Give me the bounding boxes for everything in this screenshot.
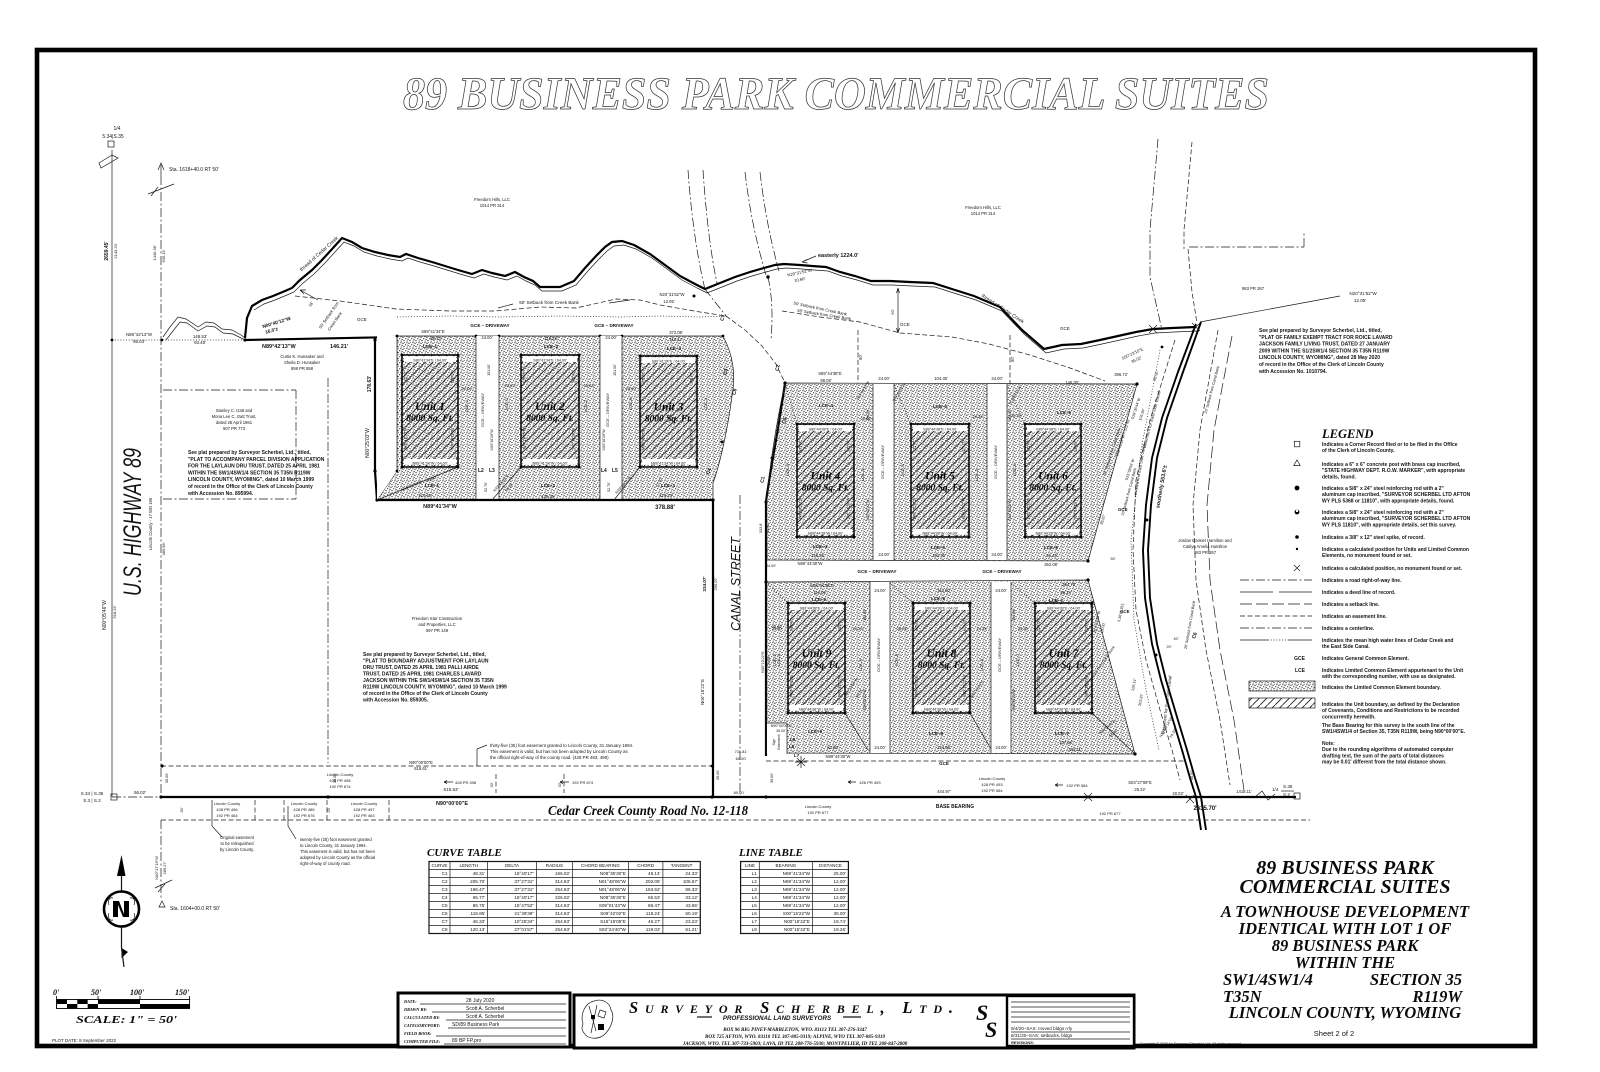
svg-text:20': 20' bbox=[1167, 645, 1172, 649]
svg-text:COMMERCIAL SUITES: COMMERCIAL SUITES bbox=[1240, 876, 1451, 898]
svg-text:C7: C7 bbox=[720, 314, 727, 322]
svg-text:334.07': 334.07' bbox=[702, 576, 707, 591]
svg-text:GCE – DRIVEWAY: GCE – DRIVEWAY bbox=[880, 445, 885, 479]
svg-text:LCE–3: LCE–3 bbox=[628, 397, 633, 410]
svg-text:30': 30' bbox=[490, 782, 494, 787]
svg-text:The Base Bearing for this surv: The Base Bearing for this survey is the … bbox=[1322, 723, 1455, 729]
svg-text:Sta. 1618+40.0 RT 50': Sta. 1618+40.0 RT 50' bbox=[169, 167, 219, 173]
svg-text:15.74': 15.74' bbox=[834, 919, 846, 924]
svg-text:N00°15'22"E: N00°15'22"E bbox=[1037, 675, 1041, 696]
svg-text:N90°00'00"E: N90°00'00"E bbox=[771, 724, 792, 728]
svg-text:of record in the Office of the: of record in the Office of the Clerk of … bbox=[188, 484, 313, 490]
svg-text:PROFESSIONAL LAND SURVEYORS: PROFESSIONAL LAND SURVEYORS bbox=[723, 1015, 832, 1022]
svg-text:S00°18'26"W: S00°18'26"W bbox=[490, 429, 494, 451]
svg-text:"PLAT TO BOUNDARY ADJUSTMENT F: "PLAT TO BOUNDARY ADJUSTMENT FOR LAYLAUN bbox=[363, 659, 489, 665]
svg-text:396.73': 396.73' bbox=[1114, 372, 1128, 377]
svg-text:N89°44'38"W / 64.00': N89°44'38"W / 64.00' bbox=[1046, 707, 1081, 711]
svg-text:362.08': 362.08' bbox=[1044, 562, 1058, 567]
svg-text:48.14': 48.14' bbox=[648, 871, 660, 876]
svg-text:26.25': 26.25' bbox=[853, 626, 864, 631]
svg-text:TRUST, DATED 25 APRIL 1981 CHA: TRUST, DATED 25 APRIL 1981 CHARLES LAVAR… bbox=[363, 672, 482, 678]
svg-text:12.05': 12.05' bbox=[663, 299, 674, 304]
svg-text:dated 25 April 1981: dated 25 April 1981 bbox=[216, 420, 253, 425]
svg-text:150': 150' bbox=[175, 988, 190, 997]
svg-text:Original easement: Original easement bbox=[220, 835, 255, 840]
svg-text:226.02': 226.02' bbox=[555, 895, 570, 900]
svg-text:"PLAT TO ACCOMPANY PARCEL DIVI: "PLAT TO ACCOMPANY PARCEL DIVISION APPLI… bbox=[188, 457, 325, 463]
svg-text:DATE:: DATE: bbox=[403, 999, 417, 1004]
svg-text:N00°15'22"E: N00°15'22"E bbox=[913, 498, 917, 519]
svg-text:C3: C3 bbox=[723, 368, 730, 376]
svg-text:125.00': 125.00' bbox=[451, 371, 455, 383]
svg-text:CATEGORY/PORT:: CATEGORY/PORT: bbox=[404, 1023, 441, 1028]
svg-text:104.35': 104.35' bbox=[932, 553, 946, 558]
svg-text:518.25': 518.25' bbox=[112, 605, 117, 618]
svg-text:194.00': 194.00' bbox=[863, 609, 867, 621]
svg-text:LCE–7: LCE–7 bbox=[1055, 731, 1070, 736]
svg-text:12.00': 12.00' bbox=[834, 903, 846, 908]
svg-text:8000 Sq. Ft.: 8000 Sq. Ft. bbox=[1040, 661, 1088, 671]
svg-text:12.05': 12.05' bbox=[1354, 298, 1366, 303]
svg-text:118.25': 118.25' bbox=[811, 553, 824, 558]
svg-text:DISTANCE: DISTANCE bbox=[819, 863, 842, 868]
svg-text:Indicates a calculated positio: Indicates a calculated position for Unit… bbox=[1322, 547, 1469, 553]
svg-text:40': 40' bbox=[1174, 637, 1179, 641]
svg-text:L4: L4 bbox=[601, 468, 607, 474]
svg-text:119.02': 119.02' bbox=[646, 927, 661, 932]
svg-text:50': 50' bbox=[1010, 356, 1015, 362]
svg-text:983 PR 267: 983 PR 267 bbox=[1194, 550, 1217, 555]
svg-text:616.53': 616.53' bbox=[444, 787, 459, 792]
svg-text:LCE–8: LCE–8 bbox=[929, 731, 944, 736]
svg-text:983 PR 267: 983 PR 267 bbox=[1242, 286, 1265, 291]
svg-text:GCE: GCE bbox=[1060, 326, 1070, 331]
svg-text:166.02': 166.02' bbox=[555, 871, 570, 876]
svg-text:S.3 | S.2: S.3 | S.2 bbox=[83, 798, 101, 803]
svg-text:N00°15'22"E: N00°15'22"E bbox=[784, 919, 810, 924]
svg-text:WY PLS 5368 or 11810", with ap: WY PLS 5368 or 11810", with appropriate … bbox=[1322, 498, 1455, 504]
svg-text:N89°44'38"W / 64.00': N89°44'38"W / 64.00' bbox=[924, 707, 959, 711]
svg-text:35.00': 35.00' bbox=[776, 729, 786, 733]
svg-text:125.00': 125.00' bbox=[642, 372, 646, 384]
svg-text:Indicates the Unit boundary, a: Indicates the Unit boundary, as defined … bbox=[1322, 702, 1460, 708]
svg-text:SCALE: 1" = 50': SCALE: 1" = 50' bbox=[76, 1015, 177, 1026]
svg-text:Indicates a setback line.: Indicates a setback line. bbox=[1322, 602, 1380, 608]
svg-text:GCE – DRIVEWAY: GCE – DRIVEWAY bbox=[470, 323, 509, 328]
svg-text:24.00': 24.00' bbox=[605, 335, 616, 340]
svg-text:125.00': 125.00' bbox=[572, 371, 576, 383]
svg-text:N00°15'22"E: N00°15'22"E bbox=[700, 679, 705, 705]
svg-text:635.15': 635.15' bbox=[161, 249, 166, 262]
svg-text:30': 30' bbox=[180, 807, 184, 812]
svg-text:428 PR 493: 428 PR 493 bbox=[981, 782, 1003, 787]
svg-text:S89°44'38"E / 64.00': S89°44'38"E / 64.00' bbox=[925, 606, 959, 610]
svg-text:S89°41'34"E: S89°41'34"E bbox=[421, 329, 445, 334]
svg-text:LCE–8: LCE–8 bbox=[931, 596, 946, 601]
svg-text:46.33': 46.33' bbox=[473, 919, 485, 924]
svg-text:148.53': 148.53' bbox=[193, 334, 207, 339]
svg-text:100': 100' bbox=[130, 988, 145, 997]
svg-text:LCE–9: LCE–9 bbox=[812, 597, 827, 602]
svg-text:125.00': 125.00' bbox=[523, 371, 527, 383]
svg-text:2009 WITHIN THE S1/2SW1/4 SECT: 2009 WITHIN THE S1/2SW1/4 SECTION 35 T35… bbox=[1259, 348, 1390, 354]
svg-text:C8: C8 bbox=[732, 388, 739, 396]
svg-text:Unit 3: Unit 3 bbox=[654, 402, 684, 414]
svg-text:192 PR 463: 192 PR 463 bbox=[353, 813, 375, 818]
svg-text:52.70': 52.70' bbox=[607, 482, 611, 492]
svg-text:Indicates a road right-of-way: Indicates a road right-of-way line. bbox=[1322, 578, 1402, 584]
svg-text:124.46': 124.46' bbox=[418, 493, 432, 498]
svg-text:SD/89 Business Park: SD/89 Business Park bbox=[452, 1022, 500, 1028]
svg-text:N89°41'34"W: N89°41'34"W bbox=[783, 903, 811, 908]
svg-text:L6: L6 bbox=[752, 911, 758, 916]
svg-text:and Properties, LLC: and Properties, LLC bbox=[418, 622, 455, 627]
svg-text:N08°35'30"E: N08°35'30"E bbox=[600, 871, 626, 876]
svg-text:S00°15'22"W: S00°15'22"W bbox=[847, 497, 851, 519]
svg-text:364.79': 364.79' bbox=[1062, 582, 1076, 587]
svg-text:Copyright © 2020 by Surveyor: Copyright © 2020 by Surveyor Scherbel, L… bbox=[1140, 1042, 1242, 1046]
svg-text:125.00': 125.00' bbox=[847, 440, 851, 452]
svg-text:194.00': 194.00' bbox=[1012, 609, 1016, 621]
svg-text:C6: C6 bbox=[442, 911, 448, 916]
svg-text:2659.45': 2659.45' bbox=[104, 241, 110, 260]
svg-text:60.19': 60.19' bbox=[685, 911, 697, 916]
svg-text:0': 0' bbox=[53, 988, 60, 997]
svg-text:125.00': 125.00' bbox=[799, 440, 803, 452]
svg-text:Due to the rounding algorithms: Due to the rounding algorithms of automa… bbox=[1322, 747, 1453, 753]
svg-text:52.70': 52.70' bbox=[484, 482, 488, 492]
svg-text:28 July 2020: 28 July 2020 bbox=[466, 998, 495, 1004]
svg-text:FIELD BOOK:: FIELD BOOK: bbox=[404, 1031, 432, 1036]
svg-text:L7: L7 bbox=[752, 919, 758, 924]
svg-text:25.00': 25.00' bbox=[834, 871, 846, 876]
svg-text:192 PR 584: 192 PR 584 bbox=[1066, 783, 1088, 788]
svg-text:LINE: LINE bbox=[745, 863, 755, 868]
svg-text:192 PR 677: 192 PR 677 bbox=[807, 810, 829, 815]
svg-text:24.33': 24.33' bbox=[685, 871, 697, 876]
svg-text:S89°41'34"E / 64.00': S89°41'34"E / 64.00' bbox=[413, 358, 447, 362]
svg-text:37°27'31": 37°27'31" bbox=[514, 879, 534, 884]
svg-text:378.88': 378.88' bbox=[655, 505, 675, 511]
svg-text:S89°44'38"E: S89°44'38"E bbox=[818, 371, 842, 376]
svg-text:LCE–6: LCE–6 bbox=[1057, 410, 1072, 415]
svg-text:L1: L1 bbox=[752, 871, 758, 876]
svg-text:may be 0.01' different from th: may be 0.01' different from the total di… bbox=[1322, 760, 1447, 766]
svg-text:with the corresponding number,: with the corresponding number, with use … bbox=[1321, 674, 1456, 680]
svg-text:with Accession No. 859305.: with Accession No. 859305. bbox=[362, 698, 429, 704]
svg-text:LCE–6: LCE–6 bbox=[1044, 545, 1059, 550]
svg-text:8000 Sq. Ft.: 8000 Sq. Ft. bbox=[1029, 484, 1077, 494]
svg-text:N89°41'34"W: N89°41'34"W bbox=[783, 887, 811, 892]
svg-text:Freedom Star Construction: Freedom Star Construction bbox=[412, 616, 463, 621]
svg-text:LEGEND: LEGEND bbox=[1321, 427, 1373, 441]
svg-text:35.00': 35.00' bbox=[834, 911, 846, 916]
svg-text:205.70': 205.70' bbox=[470, 879, 485, 884]
svg-text:SW1/4SW1/4 of Section 35, T35N: SW1/4SW1/4 of Section 35, T35N R119W, be… bbox=[1322, 729, 1466, 735]
svg-text:254.63': 254.63' bbox=[555, 927, 570, 932]
svg-text:50': 50' bbox=[858, 354, 863, 360]
svg-text:to Lincoln County, 31 January: to Lincoln County, 31 January 1994. bbox=[300, 843, 367, 848]
svg-text:S.35: S.35 bbox=[1283, 784, 1293, 789]
svg-text:DRU TRUST, DATED 25 APRIL 1981: DRU TRUST, DATED 25 APRIL 1981 PALLI AIR… bbox=[363, 665, 479, 671]
svg-text:S.2: S.2 bbox=[1283, 792, 1290, 797]
svg-text:N00°18'26"E: N00°18'26"E bbox=[642, 429, 646, 450]
svg-text:Unit 9: Unit 9 bbox=[802, 648, 832, 660]
svg-text:GCE: GCE bbox=[357, 317, 367, 322]
svg-text:192 PR 464: 192 PR 464 bbox=[216, 813, 238, 818]
svg-text:33.12': 33.12' bbox=[685, 895, 697, 900]
svg-text:86.75': 86.75' bbox=[473, 903, 485, 908]
svg-text:Scott A. Scherbel: Scott A. Scherbel bbox=[466, 1014, 504, 1020]
svg-text:N20°31'52"W: N20°31'52"W bbox=[1349, 291, 1377, 296]
svg-text:S.34 | S.35: S.34 | S.35 bbox=[81, 791, 104, 796]
svg-text:381.11': 381.11' bbox=[1068, 747, 1081, 752]
svg-text:Indicates Limited Common Eleme: Indicates Limited Common Element appurte… bbox=[1322, 668, 1463, 674]
svg-text:151.00': 151.00' bbox=[487, 364, 491, 376]
svg-text:Scott A. Scherbel: Scott A. Scherbel bbox=[466, 1006, 504, 1012]
svg-text:597 PR 149: 597 PR 149 bbox=[426, 628, 449, 633]
svg-text:N89°41'34"W / 64.00': N89°41'34"W / 64.00' bbox=[413, 461, 448, 465]
svg-text:L2: L2 bbox=[752, 879, 758, 884]
svg-text:PLOT DATE: 8 September 2022: PLOT DATE: 8 September 2022 bbox=[52, 1038, 117, 1043]
svg-text:N89°41'34"W / 64.00': N89°41'34"W / 64.00' bbox=[651, 461, 686, 465]
svg-text:See plat prepared by Surveyor: See plat prepared by Surveyor Scherbel, … bbox=[188, 450, 311, 456]
svg-text:S00°15'22"W: S00°15'22"W bbox=[962, 497, 966, 519]
svg-text:Unit 6: Unit 6 bbox=[1038, 471, 1068, 483]
svg-text:106.67': 106.67' bbox=[683, 879, 698, 884]
svg-text:192 PR 584: 192 PR 584 bbox=[981, 788, 1003, 793]
svg-text:Indicates a 5/8" x 24" steel r: Indicates a 5/8" x 24" steel reinforcing… bbox=[1322, 510, 1445, 516]
svg-text:50': 50' bbox=[1111, 557, 1116, 561]
svg-text:N00°17'16"W: N00°17'16"W bbox=[154, 856, 159, 880]
svg-text:N89°41'34"W: N89°41'34"W bbox=[423, 504, 457, 510]
svg-text:WITHIN THE SW1/4SW1/4 SECTION: WITHIN THE SW1/4SW1/4 SECTION 35 T35N R1… bbox=[188, 470, 311, 476]
svg-text:198.00': 198.00' bbox=[866, 409, 870, 421]
svg-text:125.00': 125.00' bbox=[1074, 440, 1078, 452]
svg-text:120.13': 120.13' bbox=[470, 927, 485, 932]
svg-text:FOR THE LAYLAUN DRU TRUST, DAT: FOR THE LAYLAUN DRU TRUST, DATED 25 APRI… bbox=[188, 464, 320, 470]
svg-text:N89°42'13"W: N89°42'13"W bbox=[262, 344, 296, 350]
svg-text:314.63': 314.63' bbox=[555, 879, 570, 884]
svg-text:26.25': 26.25' bbox=[897, 626, 908, 631]
svg-text:See plat prepared by Surveyor: See plat prepared by Surveyor Scherbel, … bbox=[363, 652, 486, 658]
svg-text:S89°44'38"E / 64.00': S89°44'38"E / 64.00' bbox=[1036, 427, 1070, 431]
svg-text:89 BUSINESS PARK COMMERCIAL SU: 89 BUSINESS PARK COMMERCIAL SUITES bbox=[403, 68, 1269, 120]
svg-text:20.00': 20.00' bbox=[626, 386, 637, 391]
svg-text:333.8': 333.8' bbox=[759, 523, 763, 534]
svg-text:125.00': 125.00' bbox=[404, 371, 408, 383]
svg-text:Indicates the Limited Common E: Indicates the Limited Common Element bou… bbox=[1322, 685, 1441, 691]
svg-text:N00°25'03"W: N00°25'03"W bbox=[365, 428, 371, 458]
svg-text:50': 50' bbox=[91, 988, 102, 997]
svg-text:GCE – DRIVEWAY: GCE – DRIVEWAY bbox=[982, 569, 1021, 574]
svg-text:125.00': 125.00' bbox=[690, 372, 694, 384]
svg-text:Curtis K. Hunsaker and: Curtis K. Hunsaker and bbox=[280, 354, 324, 359]
svg-text:444.97': 444.97' bbox=[937, 789, 951, 794]
svg-text:LCE–8: LCE–8 bbox=[979, 658, 984, 671]
svg-text:48.31': 48.31' bbox=[473, 871, 485, 876]
svg-text:N89°44'38"W / 64.00': N89°44'38"W / 64.00' bbox=[808, 531, 843, 535]
svg-text:LCE–2: LCE–2 bbox=[583, 399, 588, 412]
svg-text:Indicates General Common Eleme: Indicates General Common Element. bbox=[1322, 656, 1410, 662]
svg-text:N00°15'22"E: N00°15'22"E bbox=[1027, 498, 1031, 519]
svg-text:192 PR 674: 192 PR 674 bbox=[572, 780, 594, 785]
svg-text:GCE – DRIVEWAY: GCE – DRIVEWAY bbox=[997, 638, 1002, 672]
svg-text:116.05': 116.05' bbox=[813, 590, 826, 595]
svg-text:LINCOLN COUNTY, WYOMING", date: LINCOLN COUNTY, WYOMING", dated 28 May 2… bbox=[1259, 355, 1380, 361]
svg-text:192 PR 674: 192 PR 674 bbox=[329, 784, 351, 789]
svg-text:GCE: GCE bbox=[1120, 609, 1130, 614]
svg-text:GCE – DRIVEWAY: GCE – DRIVEWAY bbox=[480, 393, 485, 427]
svg-text:LCE–5: LCE–5 bbox=[974, 468, 979, 481]
svg-text:24.25': 24.25' bbox=[977, 626, 988, 631]
svg-text:GCE – DRIVEWAY: GCE – DRIVEWAY bbox=[605, 393, 610, 427]
svg-text:BASE BEARING: BASE BEARING bbox=[936, 804, 974, 810]
svg-text:118.95': 118.95' bbox=[471, 911, 486, 916]
svg-text:507 PR 773: 507 PR 773 bbox=[223, 426, 246, 431]
svg-text:"PLAT OF FAMILY EXEMPT TRACT F: "PLAT OF FAMILY EXEMPT TRACT FOR ROICE L… bbox=[1259, 335, 1393, 341]
svg-text:C3: C3 bbox=[442, 887, 448, 892]
svg-text:N00°15'22"E: N00°15'22"E bbox=[799, 498, 803, 519]
svg-text:L3: L3 bbox=[489, 468, 495, 474]
svg-text:L8: L8 bbox=[790, 737, 796, 742]
svg-text:GCE: GCE bbox=[1294, 656, 1306, 662]
svg-text:Indicates a Corner Record file: Indicates a Corner Record filed or to be… bbox=[1322, 442, 1458, 448]
svg-text:192 PR 676: 192 PR 676 bbox=[293, 813, 315, 818]
svg-text:Jordan Ezekiel Hamilton and: Jordan Ezekiel Hamilton and bbox=[1178, 538, 1232, 543]
svg-text:LCE–3: LCE–3 bbox=[703, 397, 708, 410]
svg-text:N01°48'06"W: N01°48'06"W bbox=[599, 887, 627, 892]
svg-text:C7: C7 bbox=[442, 919, 448, 924]
svg-text:24.00': 24.00' bbox=[874, 588, 885, 593]
svg-text:428 PR 498: 428 PR 498 bbox=[329, 778, 351, 783]
svg-text:S15°19'05"E: S15°19'05"E bbox=[600, 919, 626, 924]
svg-text:9/4/20–SAS: moved bldgs n'ly: 9/4/20–SAS: moved bldgs n'ly bbox=[1011, 1026, 1073, 1031]
svg-text:35.00': 35.00' bbox=[770, 773, 774, 784]
svg-text:2635.70': 2635.70' bbox=[1193, 806, 1217, 812]
svg-text:DRAWN BY:: DRAWN BY: bbox=[403, 1007, 428, 1012]
svg-text:LCE–4: LCE–4 bbox=[860, 468, 865, 481]
svg-text:Lincoln County: Lincoln County bbox=[327, 772, 353, 777]
svg-text:24.00': 24.00' bbox=[878, 552, 889, 557]
svg-text:8/31/20–SAS: setbacks, bldgs: 8/31/20–SAS: setbacks, bldgs bbox=[1011, 1033, 1073, 1038]
svg-text:LCE–3: LCE–3 bbox=[667, 346, 682, 351]
svg-text:C8: C8 bbox=[442, 927, 448, 932]
svg-text:1014 PR 314: 1014 PR 314 bbox=[971, 211, 996, 216]
svg-text:N89°42'13"W: N89°42'13"W bbox=[126, 332, 153, 337]
svg-text:REVISIONS:: REVISIONS: bbox=[1011, 1040, 1035, 1045]
svg-text:1440.38': 1440.38' bbox=[152, 245, 157, 260]
svg-text:L5: L5 bbox=[752, 903, 758, 908]
svg-text:50': 50' bbox=[890, 309, 895, 314]
svg-text:N89°44'38"W: N89°44'38"W bbox=[798, 561, 823, 566]
svg-text:S00°15'22"W: S00°15'22"W bbox=[1008, 499, 1012, 521]
svg-text:S89°44'38"E / 64.00': S89°44'38"E / 64.00' bbox=[1047, 606, 1081, 610]
svg-text:81.05': 81.05' bbox=[827, 745, 838, 750]
svg-text:Unit 8: Unit 8 bbox=[927, 648, 957, 660]
svg-text:GCE – DRIVEWAY: GCE – DRIVEWAY bbox=[857, 569, 896, 574]
svg-text:Indicates an easement line.: Indicates an easement line. bbox=[1322, 614, 1387, 620]
svg-text:372.08': 372.08' bbox=[669, 330, 683, 335]
svg-text:27°01'57": 27°01'57" bbox=[514, 927, 534, 932]
svg-text:CURVE: CURVE bbox=[432, 863, 448, 868]
svg-text:S00°15'22"W: S00°15'22"W bbox=[863, 689, 867, 711]
svg-text:Freedom Hills, LLC: Freedom Hills, LLC bbox=[474, 197, 510, 202]
svg-text:Indicates the mean high water: Indicates the mean high water lines of C… bbox=[1322, 638, 1453, 644]
svg-text:S89°44'38"E / 64.00': S89°44'38"E / 64.00' bbox=[923, 427, 957, 431]
svg-text:8000 Sq. Ft.: 8000 Sq. Ft. bbox=[802, 484, 850, 494]
svg-text:35.00': 35.00' bbox=[1190, 770, 1194, 781]
svg-text:N00°18'26"E: N00°18'26"E bbox=[523, 428, 527, 449]
svg-text:Indicates a 3/8" x 12" steel s: Indicates a 3/8" x 12" steel spike, of r… bbox=[1322, 535, 1425, 541]
svg-text:24.00': 24.00' bbox=[481, 335, 492, 340]
svg-text:L8: L8 bbox=[752, 927, 758, 932]
svg-text:428 PR 485: 428 PR 485 bbox=[293, 807, 315, 812]
svg-text:2143.20': 2143.20' bbox=[113, 243, 118, 258]
svg-text:to be relinquished: to be relinquished bbox=[220, 841, 254, 846]
svg-text:C1: C1 bbox=[442, 871, 448, 876]
svg-text:S00°18'26"W: S00°18'26"W bbox=[602, 429, 606, 451]
svg-text:LINCOLN COUNTY, WYOMING: LINCOLN COUNTY, WYOMING bbox=[1228, 1003, 1461, 1022]
svg-text:89 BP FP.pro: 89 BP FP.pro bbox=[452, 1038, 481, 1044]
svg-text:125.00': 125.00' bbox=[790, 619, 794, 631]
svg-text:LENGTH: LENGTH bbox=[459, 863, 478, 868]
svg-text:1/4: 1/4 bbox=[114, 126, 121, 132]
svg-text:86.24': 86.24' bbox=[1060, 590, 1071, 595]
svg-text:151.00': 151.00' bbox=[613, 364, 617, 376]
svg-text:thirty-five (35) foot easement: thirty-five (35) foot easement granted t… bbox=[490, 743, 633, 748]
svg-text:202.05': 202.05' bbox=[645, 879, 660, 884]
svg-text:N90°00'00"E: N90°00'00"E bbox=[436, 801, 468, 807]
svg-text:198.00': 198.00' bbox=[1008, 409, 1012, 421]
svg-text:61.21': 61.21' bbox=[685, 927, 697, 932]
svg-text:BOX 96 BIG PINEY-MARBLETON, WY: BOX 96 BIG PINEY-MARBLETON, WYO. 83113 T… bbox=[722, 1028, 867, 1033]
svg-text:This easement is valid, but ha: This easement is valid, but has not been… bbox=[490, 749, 628, 754]
svg-text:46.27': 46.27' bbox=[648, 919, 660, 924]
svg-text:104.35': 104.35' bbox=[934, 376, 948, 381]
svg-text:Indicates a 6" x 6" concrete p: Indicates a 6" x 6" concrete post with b… bbox=[1322, 462, 1461, 468]
svg-text:N89°41'34"W: N89°41'34"W bbox=[783, 879, 811, 884]
svg-text:TANGENT: TANGENT bbox=[671, 863, 693, 868]
svg-text:24.25': 24.25' bbox=[1018, 626, 1029, 631]
svg-text:8000 Sq. Ft.: 8000 Sq. Ft. bbox=[918, 661, 966, 671]
svg-text:Lincoln County: Lincoln County bbox=[979, 776, 1005, 781]
svg-text:of record in the Office of the: of record in the Office of the Clerk of … bbox=[1259, 362, 1384, 368]
svg-text:25.22': 25.22' bbox=[1134, 787, 1145, 792]
svg-text:LCE–2: LCE–2 bbox=[541, 483, 556, 488]
svg-text:Indicates a centerline.: Indicates a centerline. bbox=[1322, 626, 1375, 632]
svg-text:N89°41'34"W: N89°41'34"W bbox=[783, 871, 811, 876]
svg-text:S89°44'38"E / 64.00': S89°44'38"E / 64.00' bbox=[800, 606, 834, 610]
svg-text:5.34|S.35: 5.34|S.35 bbox=[102, 134, 124, 140]
svg-text:twenty-five (25) foot easement: twenty-five (25) foot easement granted bbox=[300, 837, 372, 842]
svg-text:N89°44'38"W: N89°44'38"W bbox=[826, 754, 851, 759]
svg-text:1/4: 1/4 bbox=[1272, 787, 1279, 792]
svg-text:314.63': 314.63' bbox=[555, 911, 570, 916]
svg-text:LCE–4: LCE–4 bbox=[813, 544, 828, 549]
svg-text:N00°15'22"E: N00°15'22"E bbox=[761, 651, 765, 673]
svg-text:LCE–9: LCE–9 bbox=[808, 729, 823, 734]
svg-text:LCE–7: LCE–7 bbox=[1049, 598, 1064, 603]
svg-text:N00°15'22"E: N00°15'22"E bbox=[784, 927, 810, 932]
svg-text:N89°44'38"W / 64.00': N89°44'38"W / 64.00' bbox=[923, 531, 958, 535]
svg-text:S89°44'38"E: S89°44'38"E bbox=[810, 583, 834, 588]
svg-text:details, found.: details, found. bbox=[1322, 474, 1357, 480]
svg-text:98.08': 98.08' bbox=[820, 378, 831, 383]
svg-text:N89°41'34"W / 64.00': N89°41'34"W / 64.00' bbox=[533, 461, 568, 465]
svg-text:55.03': 55.03' bbox=[133, 339, 145, 344]
svg-text:S00°18'26"W: S00°18'26"W bbox=[451, 428, 455, 450]
